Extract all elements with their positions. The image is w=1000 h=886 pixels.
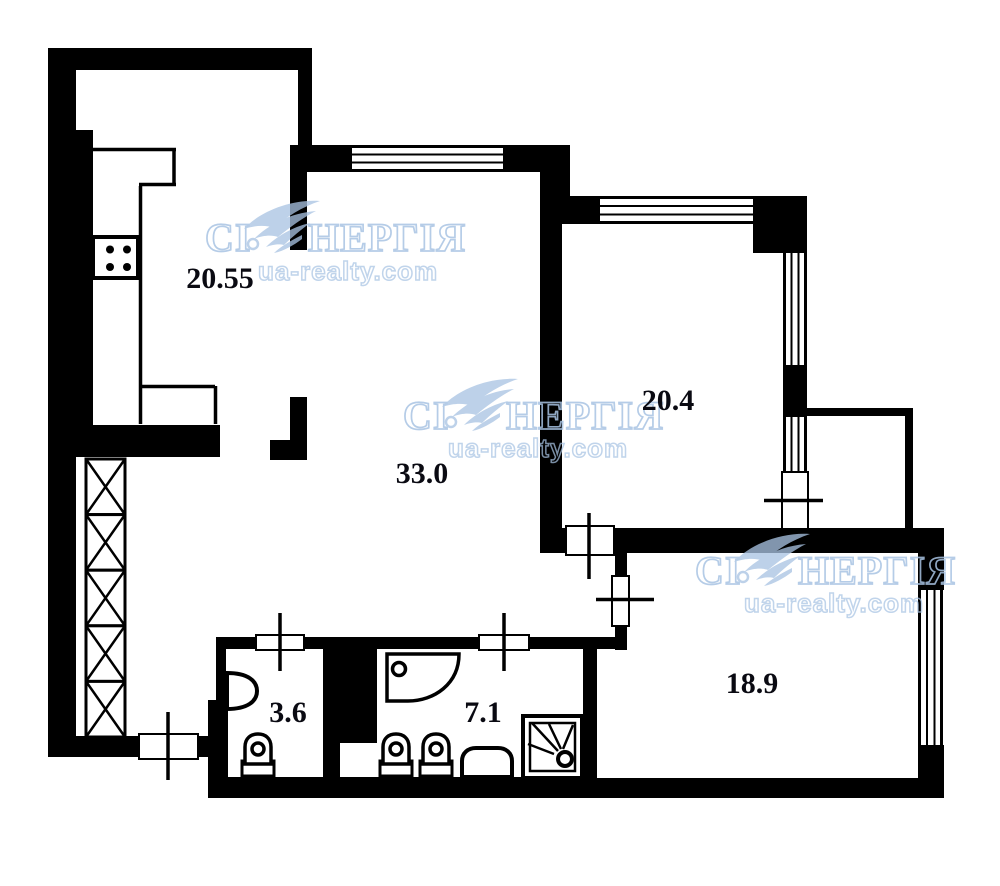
burner <box>106 263 114 271</box>
window-bedroom-top <box>600 196 753 224</box>
shaft-cell <box>86 681 125 737</box>
faucet <box>393 663 406 676</box>
wall <box>216 637 257 649</box>
window-glass <box>783 417 807 473</box>
shaft-cell <box>86 570 125 626</box>
floor-plan: СІ НЕРГІЯ ua-realty.com СІ НЕРГІЯ ua-rea… <box>0 0 1000 886</box>
wall <box>323 638 377 743</box>
wall <box>583 778 944 798</box>
stove-icon <box>93 237 138 278</box>
window-glass <box>783 253 807 365</box>
wall <box>528 637 617 649</box>
toilet-icon <box>380 734 412 776</box>
balcony-wall <box>805 408 913 416</box>
watermark-brand-prefix: СІ <box>205 215 251 260</box>
burner <box>106 246 114 254</box>
wall <box>540 170 562 553</box>
toilet-icon <box>420 734 452 776</box>
door-second-bedroom <box>596 576 654 626</box>
wall <box>615 553 627 577</box>
toilet-icon <box>242 734 274 776</box>
wall <box>298 66 312 150</box>
window-bedroom-right-2 <box>783 417 807 473</box>
door-bathroom <box>479 613 529 671</box>
burner <box>123 263 131 271</box>
wall <box>48 736 140 757</box>
drain <box>558 752 572 766</box>
wall <box>783 365 807 417</box>
door-entrance <box>139 712 198 780</box>
watermark-brand-prefix: СІ <box>695 548 741 593</box>
door-markers <box>139 472 823 780</box>
room-area-bathroom: 7.1 <box>464 696 502 729</box>
watermark-brand-prefix: СІ <box>403 393 449 438</box>
watermark: СІ НЕРГІЯ ua-realty.com <box>403 379 664 463</box>
corner-bath-icon <box>387 654 459 701</box>
wall <box>48 48 76 757</box>
watermark-url: ua-realty.com <box>258 256 438 286</box>
room-labels: 20.55 33.0 20.4 18.9 3.6 7.1 <box>186 262 778 729</box>
burner <box>123 246 131 254</box>
watermark-brand-suffix: НЕРГІЯ <box>798 548 956 593</box>
ventilation-shaft <box>86 459 125 737</box>
watermark-brand-suffix: НЕРГІЯ <box>506 393 664 438</box>
wall <box>290 397 307 443</box>
wall <box>270 440 307 460</box>
room-area-kitchen: 20.55 <box>186 262 254 295</box>
window-living-room <box>352 145 503 172</box>
wall <box>583 649 597 780</box>
wall <box>208 777 592 798</box>
window-bedroom-right-1 <box>783 253 807 365</box>
window-glass <box>352 145 503 172</box>
floor-plan-page: СІ НЕРГІЯ ua-realty.com СІ НЕРГІЯ ua-rea… <box>0 0 1000 886</box>
wall <box>48 48 312 70</box>
watermark-url: ua-realty.com <box>448 433 628 463</box>
washbasin-icon <box>462 748 512 777</box>
wall <box>615 625 627 650</box>
sink-icon <box>227 673 257 709</box>
wall <box>540 528 567 553</box>
balcony-wall <box>905 408 913 532</box>
door-wc <box>256 613 304 671</box>
wall <box>753 196 807 253</box>
wc-fixtures <box>227 673 274 776</box>
watermark-brand-suffix: НЕРГІЯ <box>308 215 466 260</box>
watermark-url: ua-realty.com <box>744 588 924 618</box>
room-area-bedroom: 20.4 <box>642 384 695 417</box>
shaft-cell <box>86 459 125 515</box>
wall <box>48 425 220 457</box>
shower-icon <box>523 716 582 778</box>
door-bedroom <box>566 513 614 579</box>
room-area-wc: 3.6 <box>269 696 307 729</box>
room-area-living-room: 33.0 <box>396 457 449 490</box>
window-glass <box>600 196 753 224</box>
room-area-second-bedroom: 18.9 <box>726 667 779 700</box>
wall <box>323 743 340 777</box>
wall <box>76 130 93 455</box>
door-balcony <box>764 472 823 529</box>
shaft-cell <box>86 515 125 571</box>
shaft-cell <box>86 626 125 682</box>
